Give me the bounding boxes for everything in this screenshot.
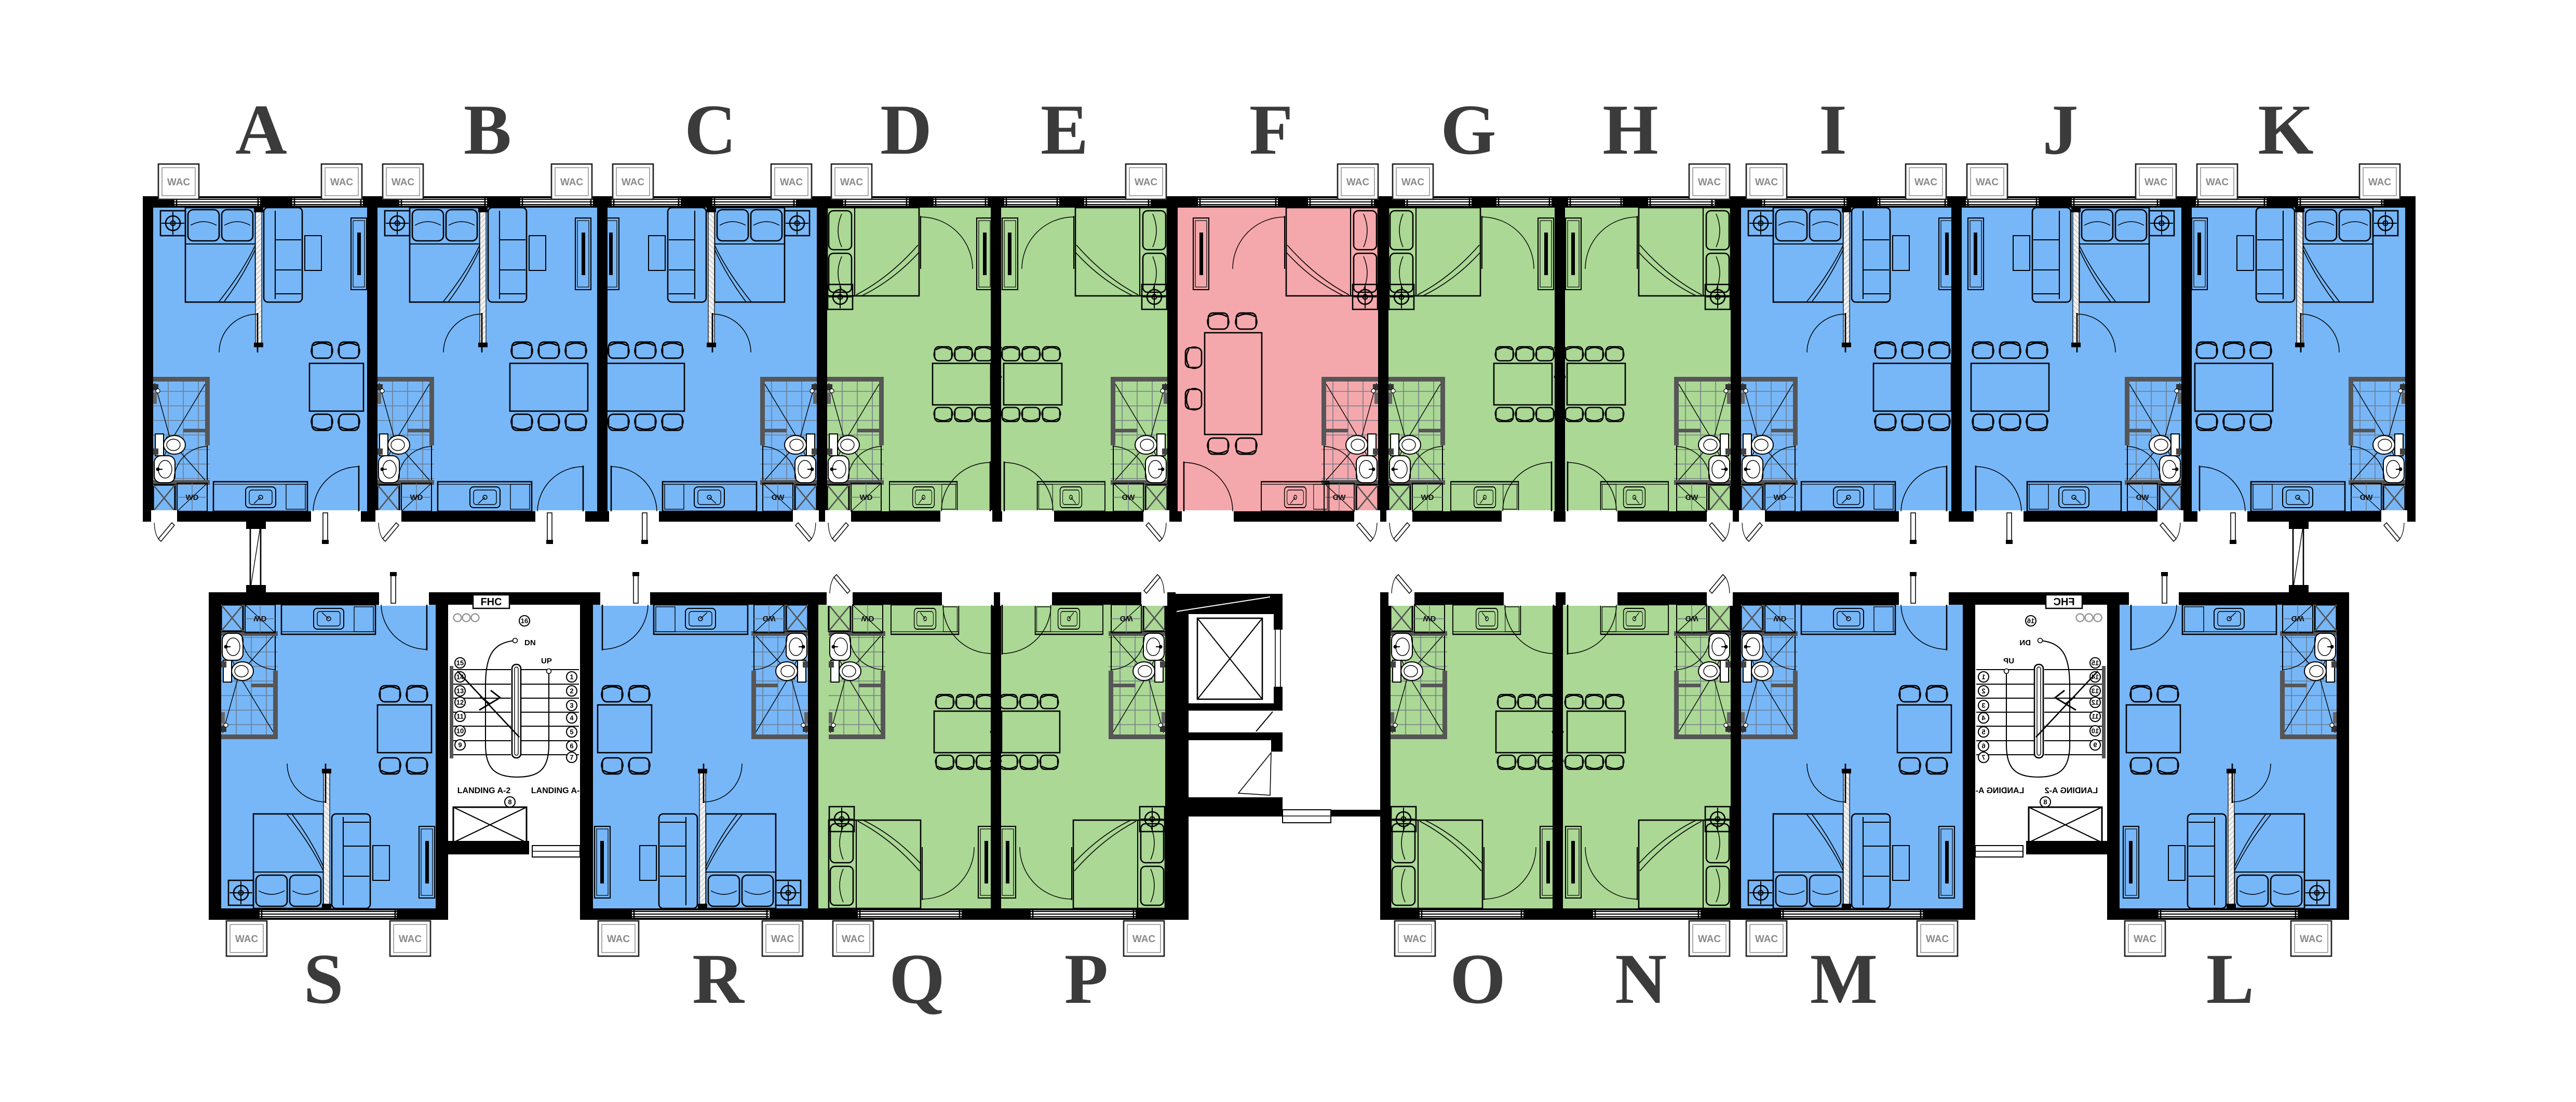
svg-text:7: 7 [570, 754, 573, 761]
svg-text:J: J [2043, 90, 2079, 169]
svg-text:FHC: FHC [480, 596, 502, 608]
svg-text:8: 8 [508, 798, 511, 806]
svg-text:WAC: WAC [392, 177, 415, 188]
svg-text:WAC: WAC [842, 934, 865, 945]
svg-text:WAC: WAC [1976, 177, 1999, 188]
svg-text:E: E [1041, 90, 1088, 169]
svg-text:B: B [464, 90, 511, 169]
svg-text:Q: Q [889, 939, 945, 1018]
svg-text:WAC: WAC [1404, 934, 1427, 945]
svg-text:WAC: WAC [1698, 177, 1721, 188]
svg-text:WAC: WAC [1755, 177, 1778, 188]
svg-text:WAC: WAC [1346, 177, 1370, 188]
svg-text:LANDING A-1: LANDING A-1 [531, 786, 585, 795]
svg-text:9: 9 [458, 741, 462, 749]
svg-text:WAC: WAC [1401, 177, 1425, 188]
svg-text:1: 1 [570, 673, 573, 681]
svg-text:G: G [1440, 90, 1496, 169]
svg-text:M: M [1810, 939, 1878, 1018]
svg-text:O: O [1450, 939, 1505, 1018]
svg-text:WAC: WAC [1135, 177, 1158, 188]
svg-text:L: L [2206, 939, 2254, 1018]
svg-text:K: K [2258, 90, 2313, 169]
svg-text:6: 6 [570, 742, 573, 750]
svg-text:3: 3 [570, 702, 573, 710]
svg-text:WAC: WAC [2134, 934, 2157, 945]
svg-text:A: A [235, 90, 287, 169]
svg-text:S: S [304, 939, 344, 1018]
svg-text:12: 12 [456, 699, 464, 706]
svg-text:13: 13 [456, 687, 464, 695]
svg-text:WAC: WAC [622, 177, 645, 188]
svg-text:WAC: WAC [1132, 934, 1156, 945]
svg-text:UP: UP [541, 657, 552, 665]
svg-text:WAC: WAC [560, 177, 584, 188]
svg-text:2: 2 [570, 687, 573, 695]
svg-text:WAC: WAC [840, 177, 864, 188]
svg-text:D: D [880, 90, 932, 169]
svg-text:WAC: WAC [2300, 934, 2323, 945]
svg-text:DN: DN [524, 638, 536, 647]
svg-text:WAC: WAC [2206, 177, 2229, 188]
svg-text:WAC: WAC [607, 934, 630, 945]
svg-text:LANDING A-2: LANDING A-2 [457, 786, 511, 795]
svg-text:N: N [1615, 939, 1667, 1018]
svg-text:5: 5 [570, 728, 573, 736]
svg-text:C: C [684, 90, 736, 169]
svg-text:WAC: WAC [330, 177, 354, 188]
svg-text:WAC: WAC [1914, 177, 1938, 188]
svg-text:11: 11 [456, 713, 464, 720]
svg-text:R: R [692, 939, 745, 1018]
svg-text:WAC: WAC [1755, 934, 1778, 945]
svg-text:WAC: WAC [771, 934, 794, 945]
svg-text:I: I [1819, 90, 1847, 169]
svg-text:WAC: WAC [167, 177, 191, 188]
svg-text:10: 10 [456, 727, 464, 735]
svg-text:15: 15 [456, 659, 464, 667]
svg-text:WAC: WAC [399, 934, 422, 945]
svg-text:WAC: WAC [235, 934, 259, 945]
svg-text:WAC: WAC [1926, 934, 1949, 945]
svg-text:H: H [1602, 90, 1658, 169]
svg-text:F: F [1249, 90, 1293, 169]
svg-text:WAC: WAC [2145, 177, 2168, 188]
svg-text:P: P [1064, 939, 1108, 1018]
svg-text:WAC: WAC [780, 177, 803, 188]
svg-text:WAC: WAC [2368, 177, 2392, 188]
svg-text:4: 4 [570, 714, 574, 722]
svg-text:16: 16 [521, 617, 528, 625]
svg-text:WAC: WAC [1698, 934, 1721, 945]
